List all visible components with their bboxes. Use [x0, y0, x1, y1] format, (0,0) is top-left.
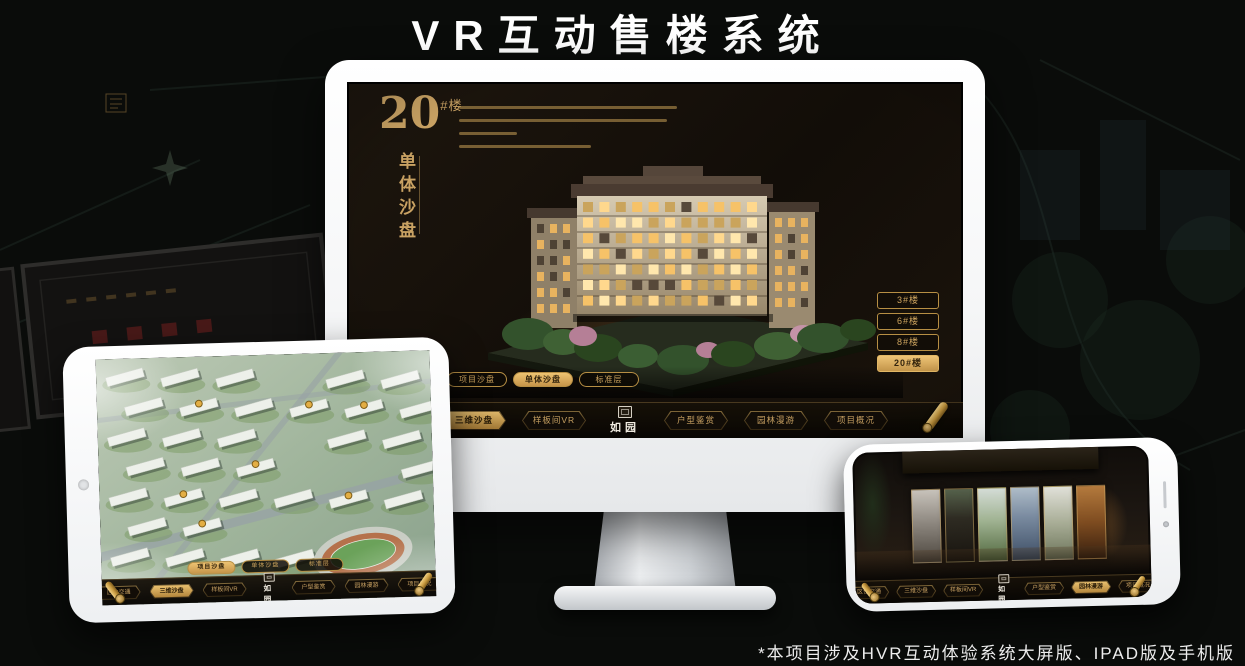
nav-item-showroom-vr[interactable]: 样板间VR	[202, 582, 246, 597]
building-heading: 20#楼	[379, 92, 462, 136]
heading-rule	[419, 156, 420, 234]
brand-logo: 如园	[610, 406, 640, 435]
nav-item-3d-sandbox[interactable]: 三维沙盘	[149, 583, 193, 598]
scroll-icon[interactable]	[923, 400, 949, 431]
phone-device: 区位交通 三维沙盘 样板间VR 如园 户型鉴赏 园林漫游 项目概况	[843, 437, 1181, 612]
tab-standard-floor[interactable]: 标准层	[295, 558, 343, 572]
page-title: VR互动售楼系统	[0, 2, 1245, 63]
desktop-sub-tabs: 项目沙盘 单体沙盘 标准层	[447, 372, 639, 387]
building-subtitle: 单体沙盘	[393, 152, 418, 244]
page: VR互动售楼系统 20#楼 单体沙盘	[0, 0, 1245, 666]
speaker-icon	[1163, 481, 1167, 508]
nav-item-floorplans[interactable]: 户型鉴赏	[664, 411, 728, 430]
tablet-device: 项目沙盘 单体沙盘 标准层 区位交通 三维沙盘 样板间VR 如园 户型鉴赏 园林…	[62, 337, 456, 624]
building-button-20[interactable]: 20#楼	[877, 355, 939, 372]
footer-note: *本项目涉及HVR互动体验系统大屏版、IPAD版及手机版	[758, 639, 1235, 664]
tab-project-sandbox[interactable]: 项目沙盘	[447, 372, 507, 387]
nav-item-project-info[interactable]: 项目概况	[824, 411, 888, 430]
tab-project-sandbox[interactable]: 项目沙盘	[187, 561, 235, 575]
seal-icon	[263, 572, 274, 581]
tab-single-sandbox[interactable]: 单体沙盘	[513, 372, 573, 387]
monitor-stand-neck	[594, 510, 736, 592]
nav-item-garden-roam[interactable]: 园林漫游	[344, 578, 388, 593]
building-selector: 3#楼 6#楼 8#楼 20#楼	[877, 292, 939, 372]
brand-logo: 如园	[263, 572, 275, 604]
description-line	[459, 132, 517, 135]
monitor-stand-base	[554, 586, 776, 610]
building-button-8[interactable]: 8#楼	[877, 334, 939, 351]
nav-item-floorplans[interactable]: 户型鉴赏	[1024, 581, 1064, 595]
tablet-screen: 项目沙盘 单体沙盘 标准层 区位交通 三维沙盘 样板间VR 如园 户型鉴赏 园林…	[96, 350, 437, 605]
nav-item-showroom-vr[interactable]: 样板间VR	[943, 583, 983, 597]
building-button-6[interactable]: 6#楼	[877, 313, 939, 330]
nav-item-floorplans[interactable]: 户型鉴赏	[291, 579, 335, 594]
gate-lintel-decor	[903, 447, 1099, 474]
description-line	[459, 106, 677, 109]
building-render	[433, 138, 903, 398]
nav-item-3d-sandbox[interactable]: 三维沙盘	[896, 584, 936, 598]
nav-item-garden-roam[interactable]: 园林漫游	[744, 411, 808, 430]
nav-item-garden-roam[interactable]: 园林漫游	[1071, 580, 1111, 594]
phone-screen: 区位交通 三维沙盘 样板间VR 如园 户型鉴赏 园林漫游 项目概况	[852, 446, 1152, 604]
brand-logo: 如园	[998, 574, 1010, 604]
building-button-3[interactable]: 3#楼	[877, 292, 939, 309]
seal-icon	[998, 574, 1009, 583]
nav-item-showroom-vr[interactable]: 样板间VR	[522, 411, 586, 430]
nav-item-3d-sandbox[interactable]: 三维沙盘	[442, 411, 506, 430]
seal-icon	[618, 406, 632, 418]
description-line	[459, 119, 667, 122]
tab-standard-floor[interactable]: 标准层	[579, 372, 639, 387]
building-number: 20	[379, 88, 440, 139]
